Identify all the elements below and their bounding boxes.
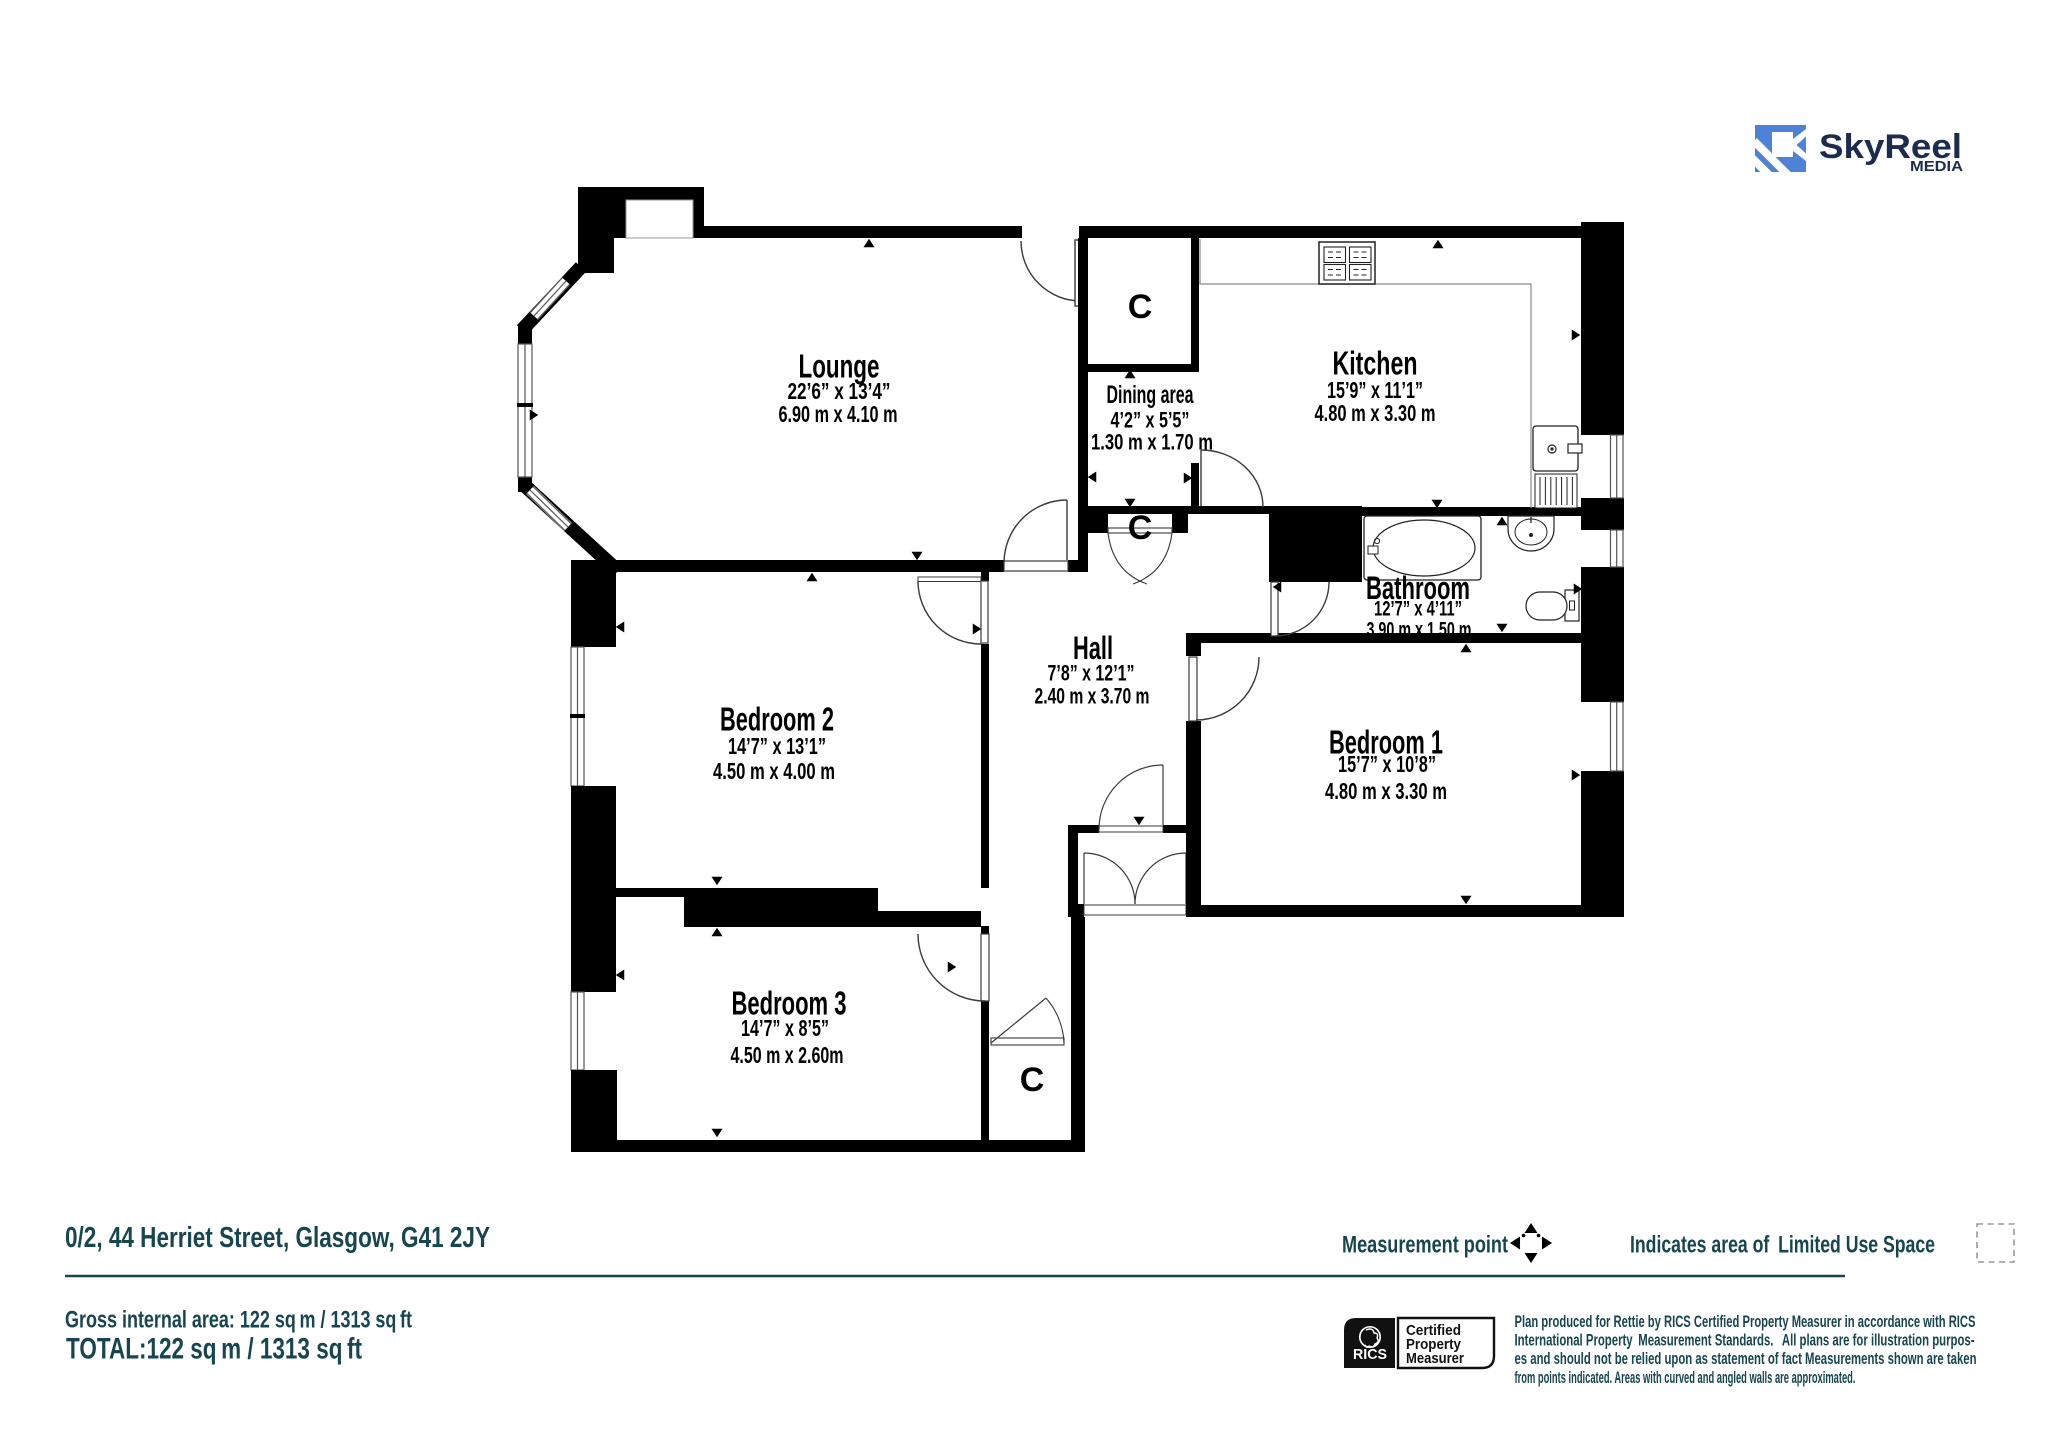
svg-text:from points indicated. Areas w: from points indicated. Areas with curved…	[1515, 1369, 1856, 1387]
svg-text:4.50 m x 2.60m: 4.50 m x 2.60m	[731, 1042, 844, 1068]
svg-text:Kitchen: Kitchen	[1333, 345, 1418, 382]
svg-text:4.80 m x 3.30 m: 4.80 m x 3.30 m	[1325, 778, 1447, 804]
svg-text:TOTAL:122 sq m / 1313 sq ft: TOTAL:122 sq m / 1313 sq ft	[66, 1333, 362, 1366]
svg-text:Measurement point: Measurement point	[1342, 1232, 1508, 1259]
svg-text:14’7” x 8’5”: 14’7” x 8’5”	[741, 1015, 829, 1041]
svg-text:Bedroom 2: Bedroom 2	[720, 701, 834, 738]
svg-text:International Property Measure: International Property Measurement Stand…	[1515, 1332, 1975, 1350]
svg-text:4.50 m x 4.00 m: 4.50 m x 4.00 m	[713, 758, 835, 784]
svg-text:Measurer: Measurer	[1406, 1351, 1464, 1367]
svg-text:14’7” x 13’1”: 14’7” x 13’1”	[728, 733, 826, 759]
svg-text:0/2, 44 Herriet Street, Glasgo: 0/2, 44 Herriet Street, Glasgow, G41 2JY	[65, 1222, 490, 1254]
svg-text:12’7” x 4’11”: 12’7” x 4’11”	[1374, 598, 1462, 621]
svg-text:Plan produced for Rettie by RI: Plan produced for Rettie by RICS Certifi…	[1515, 1313, 1976, 1331]
svg-text:3.90 m x 1.50 m: 3.90 m x 1.50 m	[1367, 619, 1472, 642]
svg-text:es and should not be relied up: es and should not be relied upon as stat…	[1515, 1350, 1977, 1368]
svg-text:15’7” x 10’8”: 15’7” x 10’8”	[1338, 751, 1436, 777]
svg-text:Gross internal area: 122 sq m: Gross internal area: 122 sq m / 1313 sq …	[65, 1307, 412, 1334]
svg-text:C: C	[1128, 288, 1153, 326]
svg-text:2.40 m x 3.70 m: 2.40 m x 3.70 m	[1035, 684, 1150, 709]
svg-text:C: C	[1020, 1061, 1045, 1099]
svg-text:4.80 m x 3.30 m: 4.80 m x 3.30 m	[1315, 400, 1436, 426]
svg-text:RICS: RICS	[1353, 1347, 1387, 1363]
svg-text:MEDIA: MEDIA	[1910, 159, 1964, 175]
svg-text:7’8” x 12’1”: 7’8” x 12’1”	[1048, 661, 1135, 686]
svg-text:6.90 m x 4.10 m: 6.90 m x 4.10 m	[779, 401, 898, 427]
svg-text:C: C	[1128, 509, 1153, 547]
svg-text:Indicates area of Limited Use: Indicates area of Limited Use Space	[1630, 1232, 1935, 1259]
svg-text:1.30 m x 1.70 m: 1.30 m x 1.70 m	[1091, 430, 1213, 455]
svg-text:Dining area: Dining area	[1107, 381, 1195, 409]
